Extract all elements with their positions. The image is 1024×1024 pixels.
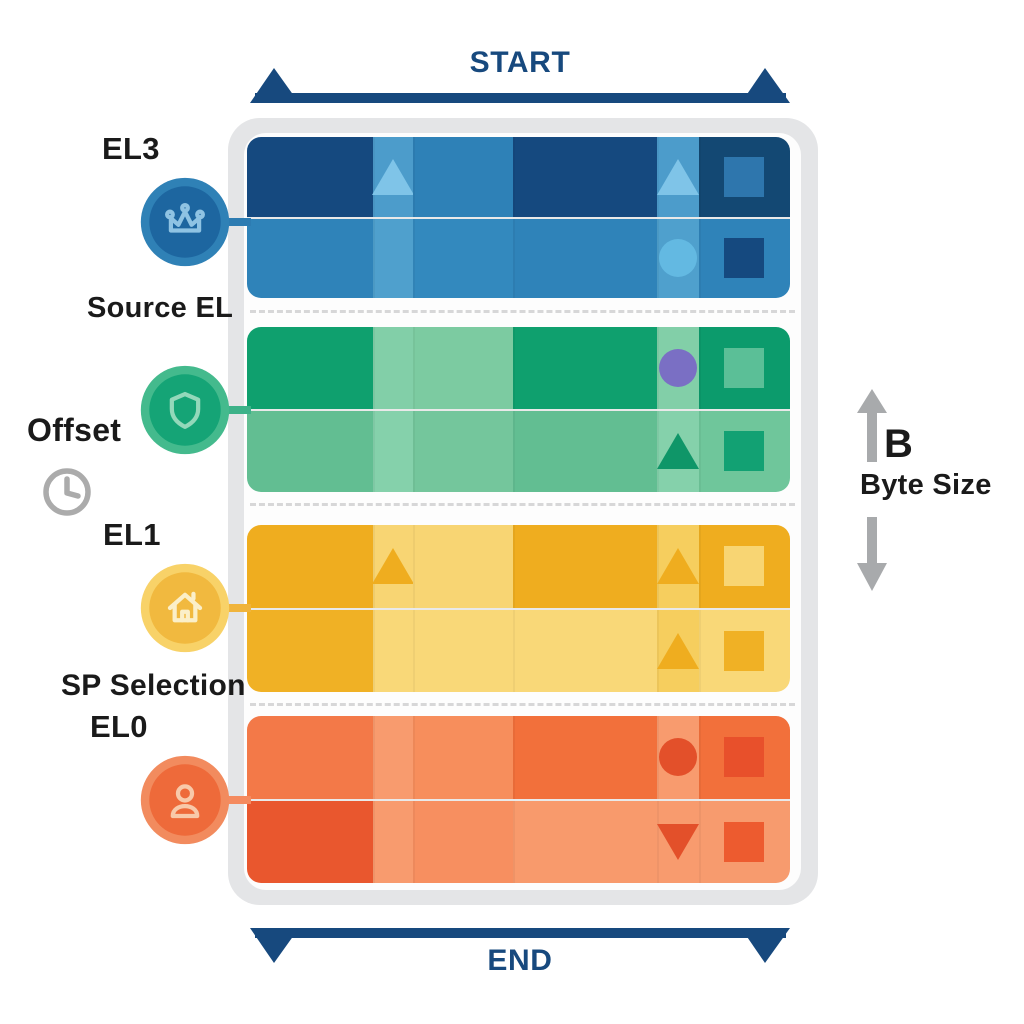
band-cell xyxy=(513,716,657,799)
home-badge xyxy=(138,561,232,655)
clock-icon xyxy=(40,465,94,519)
band-row xyxy=(247,327,790,409)
band-cell xyxy=(699,525,790,608)
band-cell xyxy=(247,801,373,884)
dashed-separator xyxy=(250,703,795,706)
band-cell xyxy=(513,327,657,409)
band-cell xyxy=(699,327,790,409)
person-badge xyxy=(138,753,232,847)
circle-glyph xyxy=(659,239,697,277)
square-glyph xyxy=(724,348,764,388)
label-el1: EL1 xyxy=(103,519,161,550)
band-cell xyxy=(657,137,699,217)
byte-size-letter: B xyxy=(884,424,913,464)
band-cell xyxy=(373,411,413,493)
band-cell xyxy=(413,411,513,493)
crown-badge xyxy=(138,175,232,269)
triangle-up-glyph xyxy=(657,433,699,469)
band-cell xyxy=(413,327,513,409)
band-cell xyxy=(413,219,513,299)
square-glyph xyxy=(724,238,764,278)
band-cell xyxy=(657,801,699,884)
band-cell xyxy=(513,525,657,608)
band-blue-el3 xyxy=(247,137,790,298)
triangle-up-glyph xyxy=(372,159,414,195)
band-cell xyxy=(373,801,413,884)
band-cell xyxy=(247,411,373,493)
dashed-separator xyxy=(250,310,795,313)
start-bracket xyxy=(245,60,795,110)
end-label: END xyxy=(245,946,795,976)
square-glyph xyxy=(724,822,764,862)
band-cell xyxy=(699,411,790,493)
band-row xyxy=(247,409,790,493)
square-glyph xyxy=(724,631,764,671)
circle-glyph xyxy=(659,738,697,776)
band-cell xyxy=(513,137,657,217)
band-cell xyxy=(413,716,513,799)
band-cell xyxy=(247,716,373,799)
band-row xyxy=(247,217,790,299)
band-cell xyxy=(513,801,657,884)
band-cell xyxy=(373,219,413,299)
byte-size-label: Byte Size xyxy=(860,471,992,500)
band-cell xyxy=(247,327,373,409)
band-cell xyxy=(657,525,699,608)
band-cell xyxy=(247,219,373,299)
diagram-canvas: START xyxy=(0,0,1024,1024)
triangle-up-glyph xyxy=(372,548,414,584)
band-row xyxy=(247,716,790,799)
label-offset: Offset xyxy=(27,414,121,446)
triangle-down-glyph xyxy=(657,824,699,860)
square-glyph xyxy=(724,431,764,471)
band-cell xyxy=(513,411,657,493)
band-orange-el0 xyxy=(247,716,790,883)
triangle-up-glyph xyxy=(657,159,699,195)
band-yellow-el1 xyxy=(247,525,790,692)
band-cell xyxy=(247,610,373,693)
circle-glyph xyxy=(659,349,697,387)
band-green xyxy=(247,327,790,492)
band-cell xyxy=(657,327,699,409)
band-cell xyxy=(699,716,790,799)
band-cell xyxy=(513,219,657,299)
band-cell xyxy=(413,525,513,608)
band-cell xyxy=(657,610,699,693)
band-cell xyxy=(413,137,513,217)
band-cell xyxy=(373,610,413,693)
band-cell xyxy=(247,137,373,217)
square-glyph xyxy=(724,157,764,197)
dashed-separator xyxy=(250,503,795,506)
square-glyph xyxy=(724,737,764,777)
band-row xyxy=(247,525,790,608)
band-cell xyxy=(373,327,413,409)
band-cell xyxy=(657,219,699,299)
band-cell xyxy=(699,801,790,884)
label-source-el: Source EL xyxy=(87,294,233,323)
band-cell xyxy=(413,610,513,693)
band-cell xyxy=(699,219,790,299)
band-row xyxy=(247,799,790,884)
band-cell xyxy=(413,801,513,884)
label-el0: EL0 xyxy=(90,711,148,742)
band-cell xyxy=(699,610,790,693)
band-cell xyxy=(657,411,699,493)
band-cell xyxy=(699,137,790,217)
triangle-up-glyph xyxy=(657,548,699,584)
triangle-up-glyph xyxy=(657,633,699,669)
band-cell xyxy=(247,525,373,608)
band-cell xyxy=(373,137,413,217)
shield-badge xyxy=(138,363,232,457)
band-cell xyxy=(373,525,413,608)
band-cell xyxy=(373,716,413,799)
band-cell xyxy=(513,610,657,693)
label-el3: EL3 xyxy=(102,133,160,164)
square-glyph xyxy=(724,546,764,586)
band-row xyxy=(247,608,790,693)
band-row xyxy=(247,137,790,217)
band-cell xyxy=(657,716,699,799)
label-sp-selection: SP Selection xyxy=(61,671,246,701)
